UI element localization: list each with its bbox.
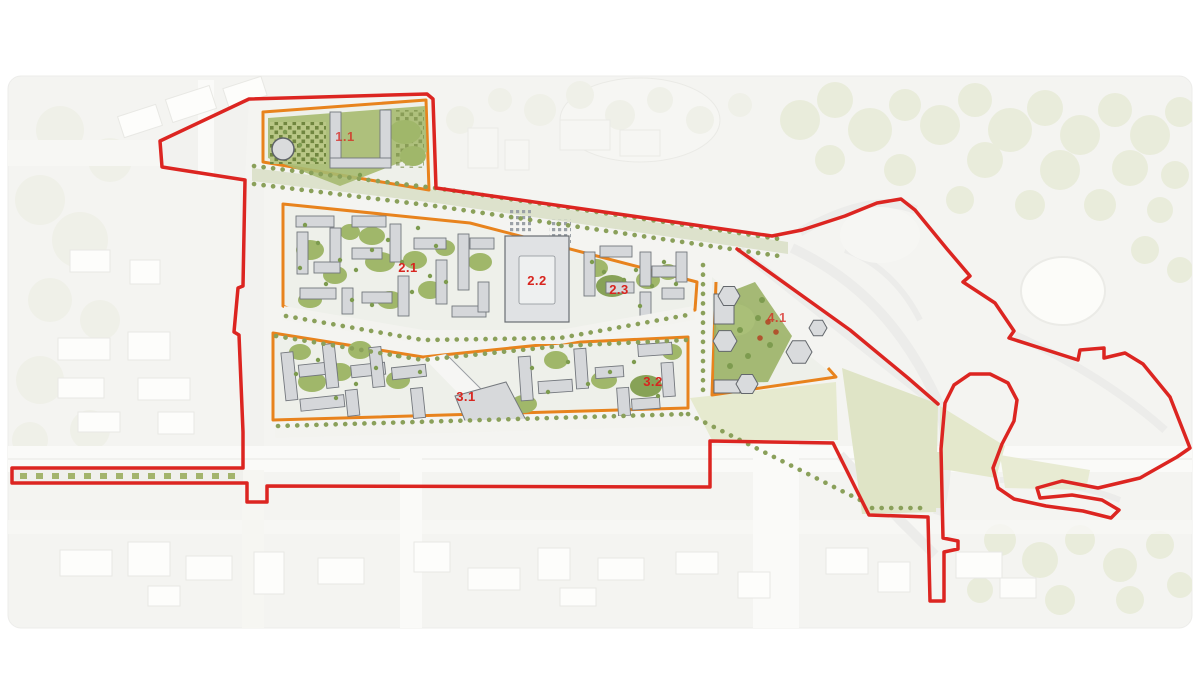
zone-label-2-2: 2.2 xyxy=(527,273,547,288)
window-grid xyxy=(509,210,531,234)
zone-label-4-1: 4.1 xyxy=(767,310,787,325)
zone-label-1-1: 1.1 xyxy=(335,129,355,144)
round-building xyxy=(272,138,294,160)
masterplan-map: 1.1 2.1 2.2 2.3 3.1 3.2 4.1 xyxy=(0,0,1200,685)
zone-label-2-1: 2.1 xyxy=(398,260,418,275)
page: 1.1 2.1 2.2 2.3 3.1 3.2 4.1 xyxy=(0,0,1200,685)
masterplan-image: 1.1 2.1 2.2 2.3 3.1 3.2 4.1 xyxy=(0,0,1200,685)
zone-label-2-3: 2.3 xyxy=(609,282,629,297)
zone-label-3-1: 3.1 xyxy=(456,389,476,404)
zone-label-3-2: 3.2 xyxy=(643,374,663,389)
